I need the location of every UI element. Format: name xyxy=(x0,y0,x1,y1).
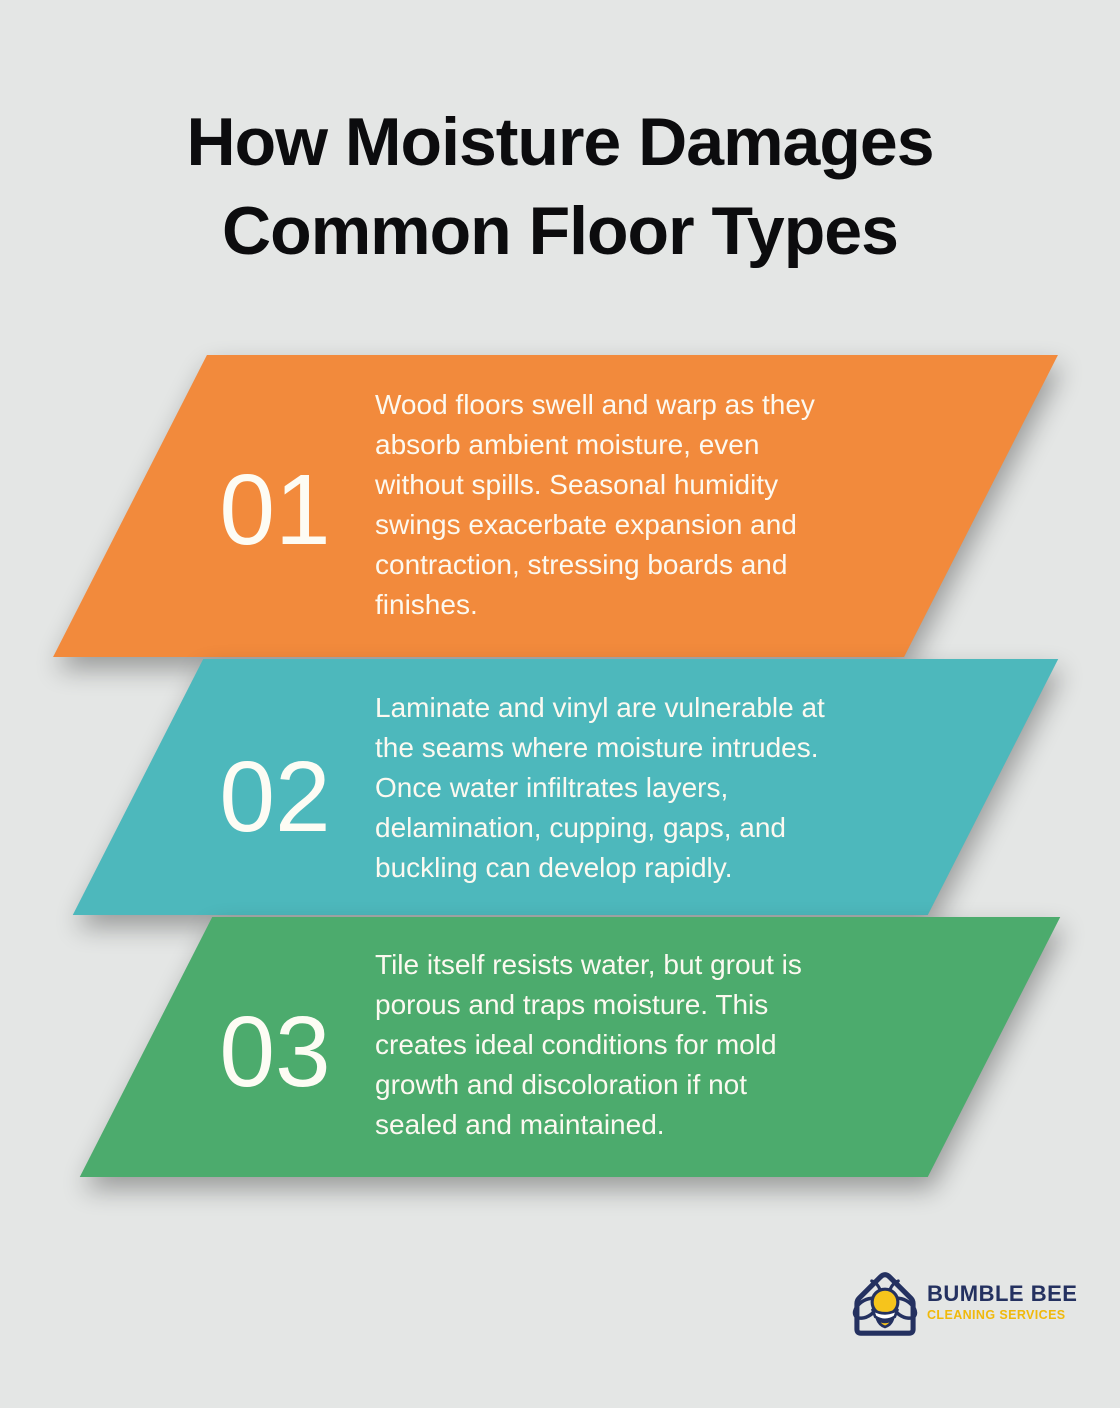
section-1-number: 01 xyxy=(205,460,345,560)
text-line: finishes. xyxy=(375,585,915,625)
text-line: creates ideal conditions for mold xyxy=(375,1025,915,1065)
brand-name: BUMBLE BEE xyxy=(927,1282,1077,1306)
text-line: sealed and maintained. xyxy=(375,1105,915,1145)
section-2-number: 02 xyxy=(205,747,345,847)
section-1-text: Wood floors swell and warp as they absor… xyxy=(375,385,915,625)
title-line-1: How Moisture Damages xyxy=(0,98,1120,187)
text-line: delamination, cupping, gaps, and xyxy=(375,808,915,848)
brand-tagline: CLEANING SERVICES xyxy=(927,1308,1077,1322)
text-line: Wood floors swell and warp as they xyxy=(375,385,915,425)
text-line: swings exacerbate expansion and xyxy=(375,505,915,545)
text-line: the seams where moisture intrudes. xyxy=(375,728,915,768)
text-line: contraction, stressing boards and xyxy=(375,545,915,585)
text-line: absorb ambient moisture, even xyxy=(375,425,915,465)
infographic-canvas: How Moisture Damages Common Floor Types … xyxy=(0,0,1120,1408)
text-line: without spills. Seasonal humidity xyxy=(375,465,915,505)
page-title: How Moisture Damages Common Floor Types xyxy=(0,98,1120,276)
brand-logo: BUMBLE BEE CLEANING SERVICES xyxy=(846,1264,1077,1340)
text-line: growth and discoloration if not xyxy=(375,1065,915,1105)
section-3-text: Tile itself resists water, but grout is … xyxy=(375,945,915,1145)
text-line: Tile itself resists water, but grout is xyxy=(375,945,915,985)
text-line: Once water infiltrates layers, xyxy=(375,768,915,808)
title-line-2: Common Floor Types xyxy=(0,187,1120,276)
text-line: Laminate and vinyl are vulnerable at xyxy=(375,688,915,728)
section-2-text: Laminate and vinyl are vulnerable at the… xyxy=(375,688,915,888)
brand-logo-text: BUMBLE BEE CLEANING SERVICES xyxy=(927,1282,1077,1322)
text-line: buckling can develop rapidly. xyxy=(375,848,915,888)
bee-house-icon xyxy=(846,1264,924,1340)
section-3-number: 03 xyxy=(205,1002,345,1102)
text-line: porous and traps moisture. This xyxy=(375,985,915,1025)
